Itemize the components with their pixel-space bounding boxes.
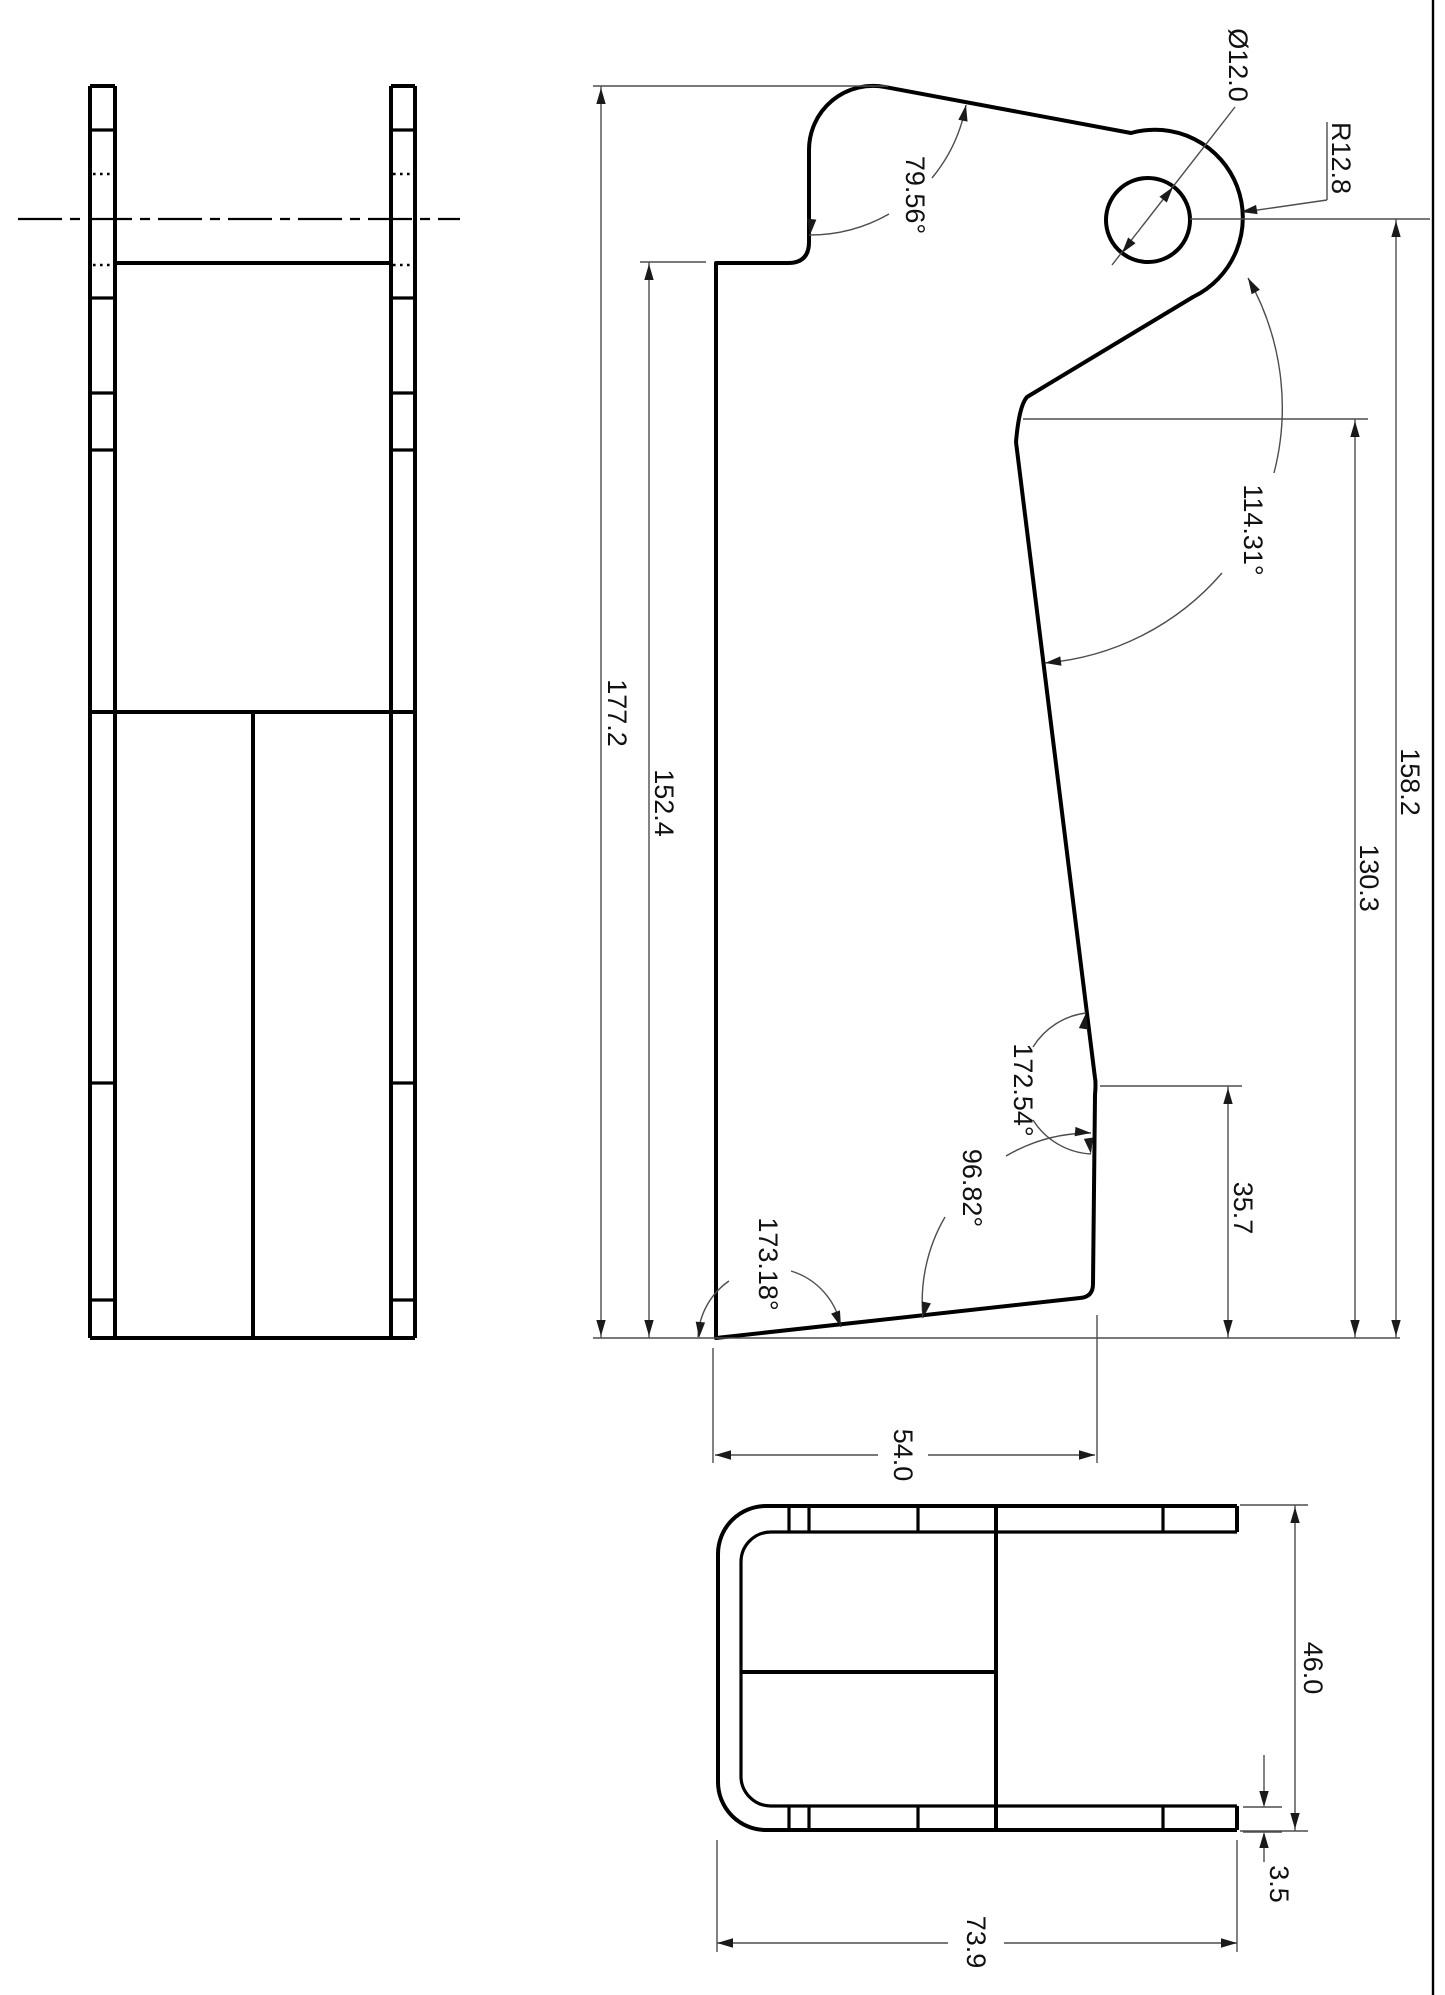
angle-label-172-54: 172.54° <box>1008 1043 1038 1136</box>
dim-hole-center-height: 158.2 <box>1190 219 1430 1338</box>
angle-label-173-18: 173.18° <box>753 1217 783 1310</box>
bottom-view <box>718 1506 1237 1830</box>
mounting-hole <box>1106 178 1190 262</box>
bottom-view-strip-dividers <box>789 1506 1163 1830</box>
angle-annotations: 79.56° 114.31° 172.54° 96.82° 17 <box>694 104 1282 1338</box>
dim-label-158-2: 158.2 <box>1395 748 1425 816</box>
angle-label-114-31: 114.31° <box>1238 484 1268 575</box>
cad-drawing-canvas: 177.2 152.4 158.2 130.3 <box>0 0 1445 1995</box>
dim-label-3-5: 3.5 <box>1264 1865 1294 1903</box>
dim-thickness: 3.5 <box>1243 1755 1294 1903</box>
dim-label-152-4: 152.4 <box>649 769 679 837</box>
dim-label-35-7: 35.7 <box>1228 1182 1258 1235</box>
dim-overall-length: 73.9 <box>717 1840 1237 1968</box>
dim-label-177-2: 177.2 <box>602 679 632 747</box>
angle-label-79-56: 79.56° <box>900 156 930 234</box>
dim-label-130-3: 130.3 <box>1354 844 1384 912</box>
dim-label-hole-diameter: Ø12.0 <box>1223 28 1253 102</box>
front-view <box>18 86 460 1338</box>
front-view-interior-edges <box>90 263 415 1338</box>
dim-tip-radius: R12.8 <box>1240 122 1356 217</box>
dim-channel-width: 46.0 <box>1240 1505 1328 1831</box>
angle-bottom-right: 96.82° <box>918 1127 1091 1319</box>
angle-label-96-82: 96.82° <box>957 1149 987 1227</box>
dim-label-73-9: 73.9 <box>961 1916 991 1969</box>
dim-label-54-0: 54.0 <box>888 1429 918 1482</box>
dim-right-edge-height: 35.7 <box>1100 1086 1258 1338</box>
dim-overall-height: 177.2 <box>593 86 888 1338</box>
dim-hole-diameter: Ø12.0 <box>1112 28 1253 265</box>
dim-bend-height: 130.3 <box>1023 419 1384 1338</box>
bottom-view-inner-outline <box>741 1532 1237 1806</box>
bottom-view-web-edges <box>741 1506 996 1830</box>
dim-label-46-0: 46.0 <box>1298 1642 1328 1695</box>
dim-label-tip-radius: R12.8 <box>1326 122 1356 194</box>
dim-base-width: 54.0 <box>713 1315 1097 1481</box>
angle-upper-bend: 114.31° <box>1044 276 1282 668</box>
drawing-page: 177.2 152.4 158.2 130.3 <box>0 0 1445 1995</box>
dim-step-height: 152.4 <box>640 262 706 1338</box>
bottom-view-outer-outline <box>718 1506 1237 1830</box>
angle-top: 79.56° <box>805 104 970 235</box>
